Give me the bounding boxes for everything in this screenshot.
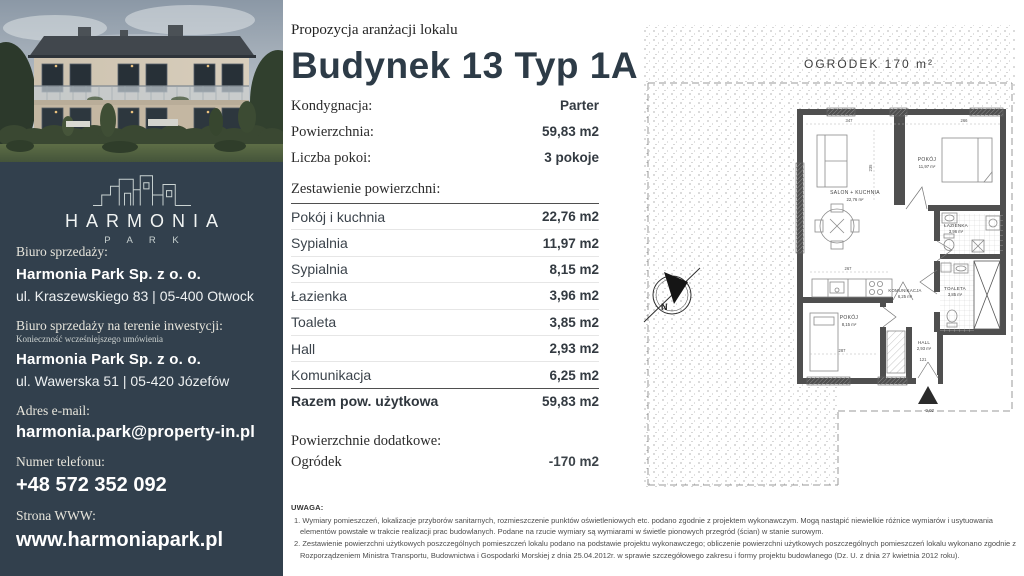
site-office-label: Biuro sprzedaży na terenie inwestycji:	[16, 318, 269, 334]
table-row: Pokój i kuchnia22,76 m2	[291, 204, 599, 230]
site-office-name: Harmonia Park Sp. z o. o.	[16, 350, 269, 369]
www-section: Strona WWW: www.harmoniapark.pl	[16, 508, 269, 552]
spec-list: Kondygnacja: Parter Powierzchnia: 59,83 …	[291, 98, 599, 202]
email-value: harmonia.park@property-in.pl	[16, 422, 269, 443]
area-table: Pokój i kuchnia22,76 m2 Sypialnia11,97 m…	[291, 203, 599, 414]
floorplan: OGRÓDEK 170 m² N	[634, 20, 1024, 490]
room-label-bathroom: ŁAZIENKA	[944, 223, 969, 228]
building-photo	[0, 0, 283, 162]
additional-areas: Powierzchnie dodatkowe: Ogródek -170 m2	[291, 429, 599, 478]
sales-office-label: Biuro sprzedaży:	[16, 244, 269, 260]
room-area-bedroom1: 11,97 m²	[919, 164, 936, 169]
building-outline-icon	[82, 167, 202, 209]
svg-text:121: 121	[920, 357, 928, 362]
site-office-address: ul. Wawerska 51 | 05-420 Józefów	[16, 372, 269, 390]
svg-text:287: 287	[839, 348, 847, 353]
room-area-toilet: 3,85 m²	[948, 292, 963, 297]
footnote-item: 1. Wymiary pomieszczeń, lokalizacje przy…	[291, 515, 1017, 538]
phone-value: +48 572 352 092	[16, 473, 269, 497]
additional-label: Powierzchnie dodatkowe:	[291, 429, 599, 454]
room-area-salon: 22,76 m²	[847, 197, 865, 202]
contact-info: Biuro sprzedaży: Harmonia Park Sp. z o. …	[16, 244, 269, 565]
www-value: www.harmoniapark.pl	[16, 528, 269, 552]
svg-text:42: 42	[899, 118, 904, 123]
brand-name: HARMONIA	[0, 211, 283, 232]
room-label-bedroom2: POKÓJ	[840, 314, 859, 321]
sidebar: HARMONIA P A R K Biuro sprzedaży: Harmon…	[0, 0, 283, 576]
apartment: -0,02	[796, 108, 1003, 413]
table-row: Łazienka3,96 m2	[291, 283, 599, 309]
sales-office-address: ul. Kraszewskiego 83 | 05-400 Otwock	[16, 287, 269, 305]
flyer-page: HARMONIA P A R K Biuro sprzedaży: Harmon…	[0, 0, 1024, 576]
site-office-section: Biuro sprzedaży na terenie inwestycji: K…	[16, 318, 269, 390]
email-label: Adres e-mail:	[16, 403, 269, 419]
table-row: Sypialnia11,97 m2	[291, 230, 599, 256]
breakdown-label: Zestawienie powierzchni:	[291, 176, 599, 202]
spec-row: Powierzchnia: 59,83 m2	[291, 124, 599, 150]
brand-logo: HARMONIA P A R K	[0, 167, 283, 246]
spec-row: Kondygnacja: Parter	[291, 98, 599, 124]
www-label: Strona WWW:	[16, 508, 269, 524]
phone-section: Numer telefonu: +48 572 352 092	[16, 454, 269, 497]
entry-level-label: -0,02	[924, 408, 935, 413]
email-section: Adres e-mail: harmonia.park@property-in.…	[16, 403, 269, 443]
footnotes: UWAGA: 1. Wymiary pomieszczeń, lokalizac…	[291, 502, 1017, 561]
svg-text:347: 347	[846, 118, 854, 123]
table-total-row: Razem pow. użytkowa59,83 m2	[291, 388, 599, 414]
svg-text:266: 266	[961, 118, 969, 123]
room-label-toilet: TOALETA	[944, 286, 967, 291]
room-label-corridor: KOMUNIKACJA	[888, 288, 921, 293]
table-row: Toaleta3,85 m2	[291, 310, 599, 336]
footnote-item: 2. Zestawienie powierzchni użytkowych po…	[291, 538, 1017, 561]
page-title: Budynek 13 Typ 1A	[291, 45, 599, 87]
sales-office-name: Harmonia Park Sp. z o. o.	[16, 265, 269, 284]
compass-north-label: N	[661, 302, 668, 312]
phone-label: Numer telefonu:	[16, 454, 269, 470]
site-office-note: Konieczność wcześniejszego umówienia	[16, 334, 269, 345]
table-row: Sypialnia8,15 m2	[291, 257, 599, 283]
room-area-bedroom2: 8,15 m²	[842, 322, 857, 327]
room-label-salon: SALON + KUCHNIA	[830, 190, 880, 196]
eyebrow-label: Propozycja aranżacji lokalu	[291, 22, 599, 39]
spec-row: Liczba pokoi: 3 pokoje	[291, 150, 599, 176]
room-area-hall: 2,93 m²	[917, 346, 932, 351]
sales-office-section: Biuro sprzedaży: Harmonia Park Sp. z o. …	[16, 244, 269, 305]
svg-text:267: 267	[845, 266, 853, 271]
table-row: Komunikacja6,25 m2	[291, 362, 599, 388]
garden-label: OGRÓDEK 170 m²	[804, 56, 934, 71]
room-label-hall: HALL	[918, 340, 931, 345]
room-area-corridor: 6,25 m²	[898, 294, 913, 299]
additional-row: Ogródek -170 m2	[291, 454, 599, 478]
unit-details: Propozycja aranżacji lokalu Budynek 13 T…	[291, 22, 599, 478]
footnotes-heading: UWAGA:	[291, 502, 1017, 514]
room-label-bedroom1: POKÓJ	[918, 156, 937, 163]
room-area-bathroom: 3,96 m²	[949, 229, 964, 234]
svg-text:235: 235	[868, 164, 873, 172]
table-row: Hall2,93 m2	[291, 336, 599, 362]
